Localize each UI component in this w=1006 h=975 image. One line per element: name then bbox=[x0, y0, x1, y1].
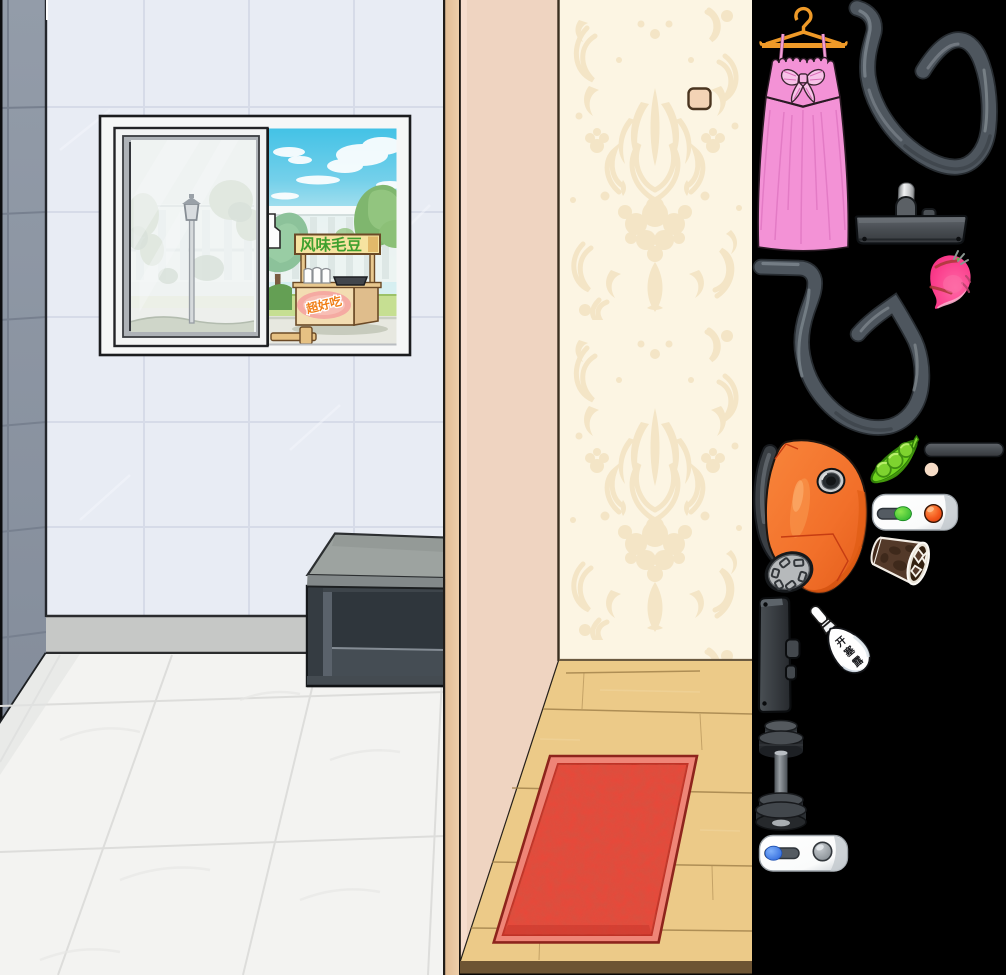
svg-text:风味毛豆: 风味毛豆 bbox=[300, 235, 362, 254]
